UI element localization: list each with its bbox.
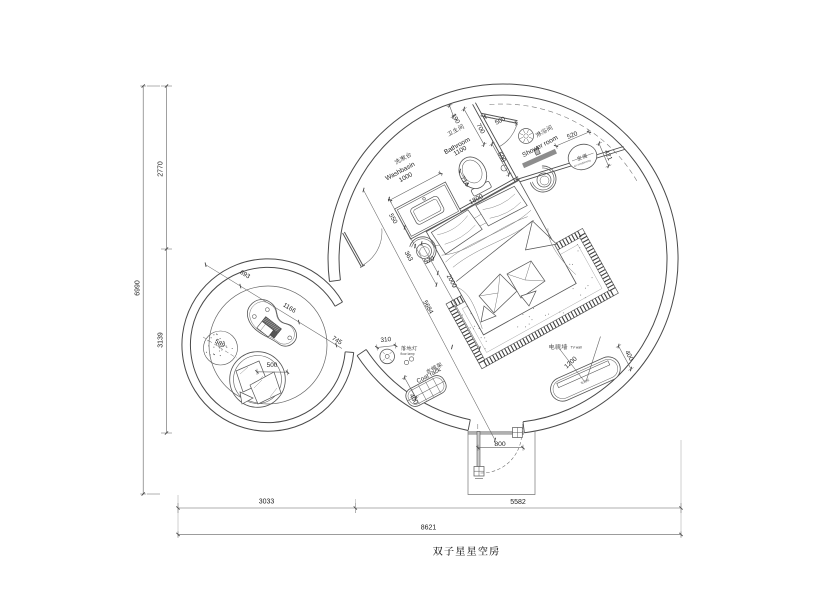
- svg-text:6990: 6990: [135, 280, 142, 296]
- svg-text:8621: 8621: [421, 525, 437, 532]
- svg-text:2770: 2770: [158, 161, 165, 177]
- svg-text:800: 800: [494, 441, 506, 448]
- svg-text:310: 310: [380, 336, 392, 344]
- svg-text:5582: 5582: [510, 499, 526, 506]
- svg-text:500: 500: [267, 362, 278, 369]
- svg-text:TV wall: TV wall: [571, 346, 582, 350]
- svg-text:3139: 3139: [158, 332, 165, 348]
- svg-text:floor lamp: floor lamp: [401, 352, 415, 356]
- svg-text:3033: 3033: [259, 499, 275, 506]
